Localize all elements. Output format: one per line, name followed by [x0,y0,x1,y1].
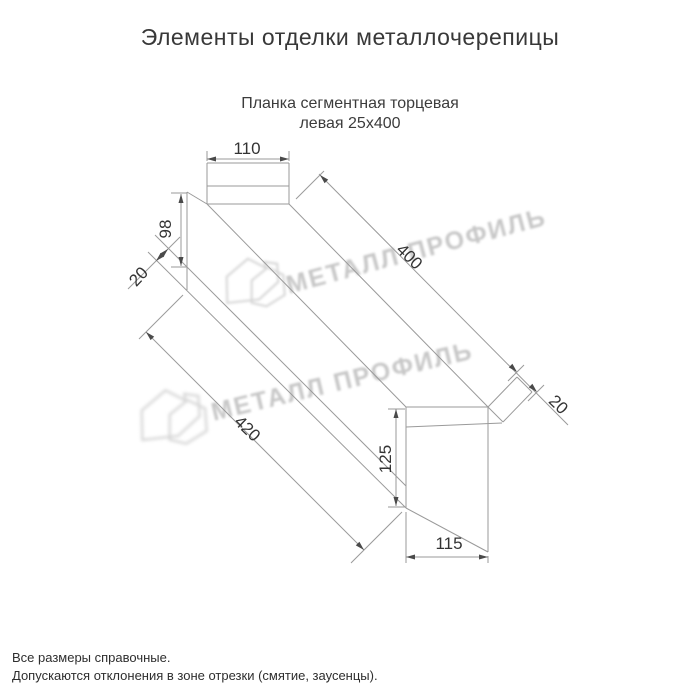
near-end-tab-outline [187,163,289,290]
page: Элементы отделки металлочерепицы Планка … [0,0,700,700]
dim-label-115: 115 [429,534,469,554]
technical-drawing [0,0,700,700]
far-end-tab-outline [406,377,532,552]
dim-label-98: 98 [156,215,176,243]
footer-note-line1: Все размеры справочные. [12,650,170,665]
dim-label-125: 125 [376,444,396,474]
footer-note-line2: Допускаются отклонения в зоне отрезки (с… [12,668,378,683]
strip-long-edges [148,204,488,508]
dim-label-110: 110 [227,139,267,159]
dimension-420 [139,295,402,563]
